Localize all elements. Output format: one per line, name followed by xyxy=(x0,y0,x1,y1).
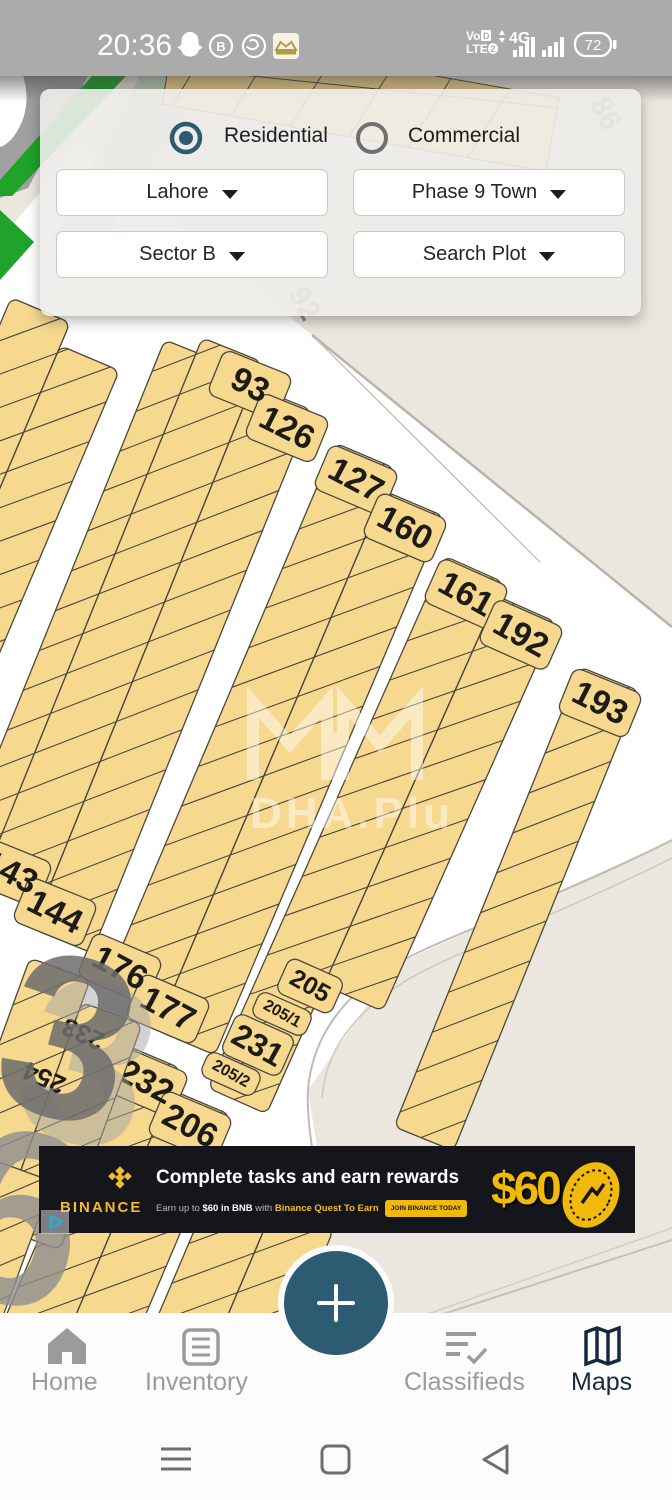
svg-text:72: 72 xyxy=(585,37,602,54)
svg-text:LTE: LTE xyxy=(466,42,488,56)
svg-text:B: B xyxy=(216,39,225,54)
svg-text:2: 2 xyxy=(491,44,496,54)
svg-text:DHA.Plu: DHA.Plu xyxy=(250,789,454,838)
svg-text:Vo: Vo xyxy=(466,29,480,43)
svg-text:D: D xyxy=(483,31,490,41)
